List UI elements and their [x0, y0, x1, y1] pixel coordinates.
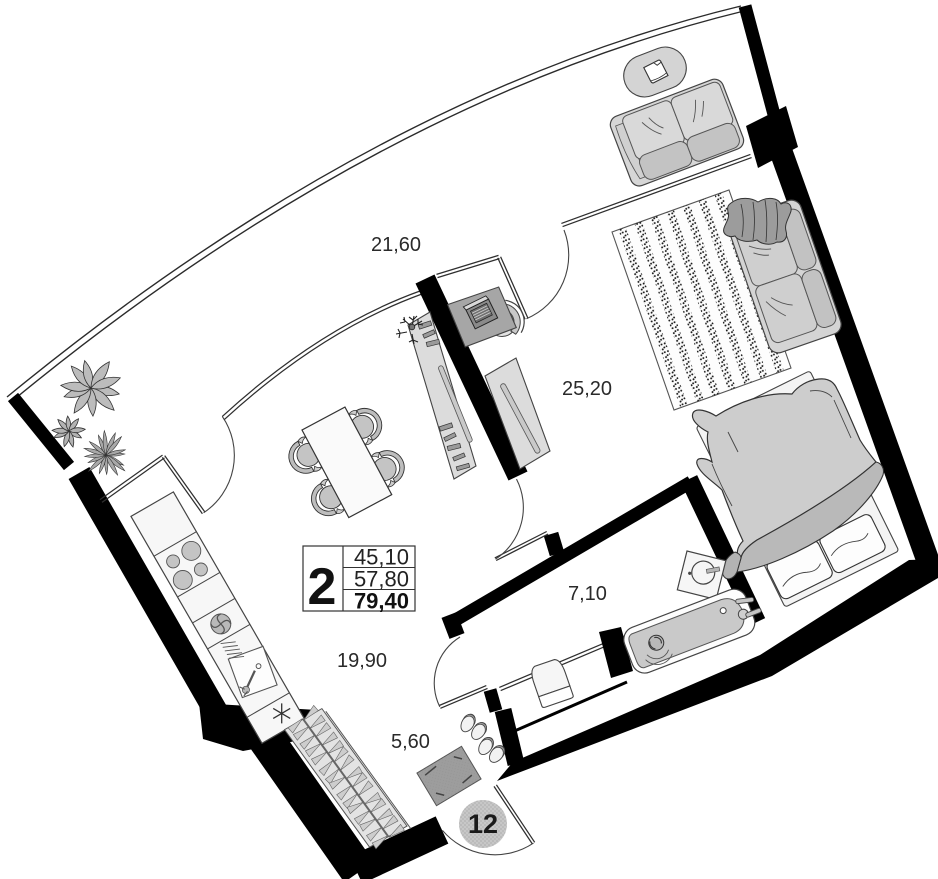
svg-text:21,60: 21,60	[371, 234, 421, 256]
svg-text:2: 2	[308, 558, 337, 616]
svg-text:19,90: 19,90	[337, 650, 387, 672]
svg-text:79,40: 79,40	[354, 589, 409, 614]
svg-text:5,60: 5,60	[391, 731, 430, 753]
svg-text:12: 12	[468, 809, 498, 839]
svg-text:25,20: 25,20	[562, 378, 612, 400]
svg-text:7,10: 7,10	[568, 583, 607, 605]
